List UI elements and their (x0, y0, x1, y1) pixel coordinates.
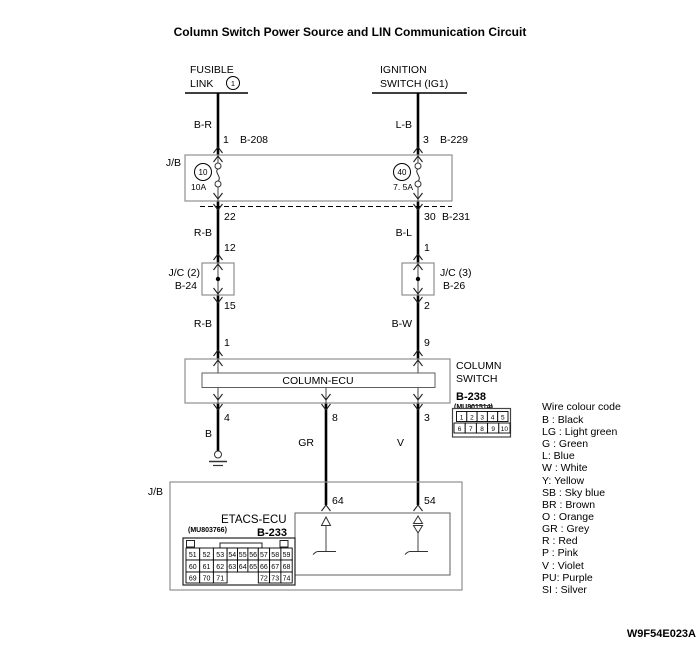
legend-item: P : Pink (542, 547, 579, 559)
b238-pin: 3 (480, 415, 484, 422)
joint-connector-3-connector: B-26 (443, 280, 465, 292)
b233-pin: 68 (283, 564, 291, 571)
b238-pin: 10 (501, 426, 509, 433)
b233-pin: 63 (228, 564, 236, 571)
connector-b238-pinout: 1 2 3 4 5 6 7 8 9 10 (453, 406, 511, 438)
joint-connector-2-label: J/C (2) (169, 267, 201, 279)
etacs-internal-box (295, 513, 450, 575)
pin-number: 9 (424, 337, 430, 349)
b233-pin: 57 (260, 552, 268, 559)
b233-pin: 70 (203, 576, 211, 583)
fuse-40-rating: 7. 5A (393, 182, 413, 192)
wire-color-label: B-L (396, 227, 413, 239)
fuse-40: 40 7. 5A (393, 155, 421, 201)
junction-block-top-label: J/B (166, 157, 181, 169)
joint-connector-3: J/C (3) B-26 (402, 263, 472, 295)
b238-pin: 9 (491, 426, 495, 433)
joint-connector-2-dot (216, 277, 220, 281)
junction-block-top: J/B 10 10A 40 7. 5A (166, 155, 452, 207)
pin-number: 4 (224, 412, 230, 424)
b238-pin: 2 (470, 415, 474, 422)
b238-pin: 6 (458, 426, 462, 433)
connector-id: B-229 (440, 134, 468, 146)
ground-symbol (209, 451, 227, 466)
b233-pin: 69 (189, 576, 197, 583)
b238-pin: 4 (491, 415, 495, 422)
etacs-internal-symbol-right (405, 516, 428, 555)
fuse-10: 10 10A (191, 155, 221, 201)
fuse-10-rating: 10A (191, 182, 206, 192)
ignition-switch-source: IGNITION SWITCH (IG1) (372, 64, 467, 93)
legend-item: B : Black (542, 414, 584, 426)
b233-pin: 67 (271, 564, 279, 571)
legend-item: LG : Light green (542, 426, 617, 438)
document-code: W9F54E023A (627, 628, 696, 640)
fusible-link-number: 1 (231, 79, 235, 88)
page-title: Column Switch Power Source and LIN Commu… (174, 25, 527, 39)
column-ecu-label: COLUMN-ECU (282, 375, 353, 387)
wire-color-legend: Wire colour code B : Black LG : Light gr… (542, 401, 621, 596)
pin-number: 15 (224, 300, 236, 312)
b233-pin: 71 (216, 576, 224, 583)
connector-b233-pinout: 51 52 53 54 55 56 57 58 59 60 61 62 63 6… (183, 538, 295, 585)
column-switch-name-line2: SWITCH (456, 373, 497, 385)
legend-item: SB : Sky blue (542, 487, 605, 499)
legend-title: Wire colour code (542, 401, 621, 413)
wire-and-pin-labels: B-R 1 B-208 L-B 3 B-229 22 30 B-231 R-B … (194, 119, 470, 507)
junction-block-top-box (185, 155, 452, 201)
ignition-label-line1: IGNITION (380, 64, 427, 76)
etacs-part-number: (MU803766) (188, 527, 227, 534)
b233-pin: 59 (283, 552, 291, 559)
pin-number: 64 (332, 495, 344, 507)
legend-item: PU: Purple (542, 572, 593, 584)
b233-pin: 66 (260, 564, 268, 571)
ignition-label-line2: SWITCH (IG1) (380, 78, 448, 90)
wire-color-label: L-B (396, 119, 412, 131)
fusible-link-label-line1: FUSIBLE (190, 64, 234, 76)
fuse-40-number: 40 (398, 168, 407, 177)
pin-number: 22 (224, 211, 236, 223)
b233-pin: 51 (189, 552, 197, 559)
legend-item: BR : Brown (542, 499, 595, 511)
b233-pin: 54 (228, 552, 236, 559)
wire-color-label: B-R (194, 119, 213, 131)
b233-pin: 58 (271, 552, 279, 559)
pin-number: 30 (424, 211, 436, 223)
wire-color-label: B-W (392, 318, 413, 330)
b233-pin: 60 (189, 564, 197, 571)
joint-connector-3-dot (416, 277, 420, 281)
b233-pin: 53 (216, 552, 224, 559)
pin-number: 1 (424, 242, 430, 254)
wire-color-label: R-B (194, 318, 212, 330)
b233-pin: 62 (216, 564, 224, 571)
pin-number: 12 (224, 242, 236, 254)
b233-pin: 52 (203, 552, 211, 559)
wire-color-label: V (397, 437, 404, 449)
legend-item: G : Green (542, 438, 588, 450)
fuse-10-number: 10 (199, 168, 208, 177)
etacs-internal-symbol-left (313, 517, 336, 555)
etacs-ecu-label: ETACS-ECU (221, 514, 287, 526)
connector-id: B-208 (240, 134, 268, 146)
pin-number: 3 (423, 134, 429, 146)
legend-item: Y: Yellow (542, 475, 584, 487)
b233-pin: 55 (239, 552, 247, 559)
b238-pin: 7 (469, 426, 473, 433)
b233-pin: 74 (283, 576, 291, 583)
wire-color-label: B (205, 428, 212, 440)
b238-pin: 5 (501, 415, 505, 422)
fusible-link-source: FUSIBLE LINK 1 (185, 64, 248, 93)
joint-connector-3-label: J/C (3) (440, 267, 472, 279)
pin-number: 3 (424, 412, 430, 424)
b233-pin: 61 (203, 564, 211, 571)
connector-id: B-231 (442, 211, 470, 223)
wire-color-label: GR (298, 437, 314, 449)
wiring-diagram-page: Column Switch Power Source and LIN Commu… (0, 0, 700, 653)
b233-pin: 65 (249, 564, 257, 571)
b233-pin: 73 (271, 576, 279, 583)
b233-pin: 64 (239, 564, 247, 571)
legend-item: W : White (542, 462, 588, 474)
pin-number: 2 (424, 300, 430, 312)
pin-number: 1 (223, 134, 229, 146)
wire-color-label: R-B (194, 227, 212, 239)
legend-item: V : Violet (542, 560, 584, 572)
legend-item: GR : Grey (542, 523, 590, 535)
junction-block-bottom-label: J/B (148, 486, 163, 498)
joint-connector-2-connector: B-24 (175, 280, 197, 292)
pin-number: 1 (224, 337, 230, 349)
pin-number: 54 (424, 495, 436, 507)
b233-pin: 56 (249, 552, 257, 559)
column-switch-connector-id: B-238 (456, 391, 486, 403)
b238-pin: 1 (460, 415, 464, 422)
b233-pin: 72 (260, 576, 268, 583)
circuit-diagram: Column Switch Power Source and LIN Commu… (0, 0, 700, 653)
legend-item: R : Red (542, 535, 578, 547)
legend-item: O : Orange (542, 511, 594, 523)
fusible-link-label-line2: LINK (190, 78, 213, 90)
b238-pin: 8 (480, 426, 484, 433)
column-switch-unit: COLUMN-ECU COLUMN SWITCH B-238 (MU801514… (185, 359, 502, 411)
column-switch-name-line1: COLUMN (456, 360, 502, 372)
pin-number: 8 (332, 412, 338, 424)
legend-item: L: Blue (542, 450, 575, 462)
legend-item: SI : Silver (542, 584, 587, 596)
joint-connector-2: J/C (2) B-24 (169, 263, 235, 295)
etacs-connector-id: B-233 (257, 527, 287, 539)
